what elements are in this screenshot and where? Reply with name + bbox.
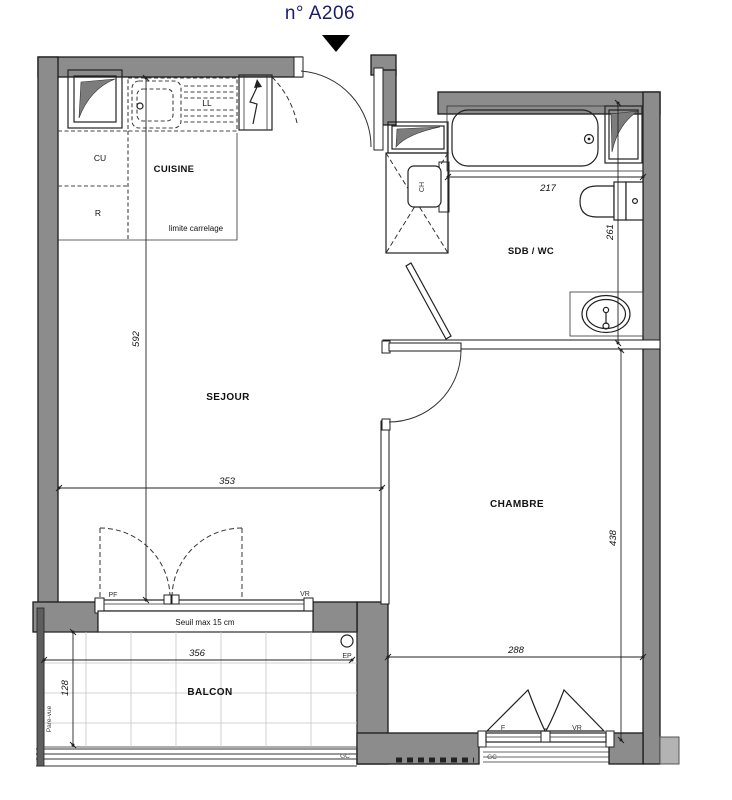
- rain-pipe-label: EP: [342, 653, 352, 660]
- rain-pipe-icon: [341, 635, 353, 647]
- fridge-label: R: [95, 208, 101, 218]
- shutter-label-vr-chambre: VR: [572, 725, 582, 732]
- dimension-lines: [44, 78, 643, 745]
- gc-label-balcon: GC: [340, 753, 350, 760]
- floor-plan-drawing: n° A206: [0, 0, 732, 800]
- dim-sejour-height: 592: [131, 330, 142, 347]
- kitchen-sink-icon: [132, 81, 181, 128]
- privacy-screen: [37, 608, 44, 766]
- dim-balcon-width: 356: [189, 648, 206, 659]
- dim-sejour-width: 353: [219, 476, 236, 487]
- kitchen-tall-closet-icon: [68, 70, 122, 128]
- room-label-cuisine: CUISINE: [154, 164, 195, 175]
- gc-label-chambre: GC: [487, 754, 497, 761]
- entrance-door: [272, 71, 371, 147]
- tile-limit-label: limite carrelage: [169, 224, 224, 233]
- privacy-screen-label: Pare-vue: [46, 705, 53, 732]
- shutter-label-vr-sejour: VR: [300, 591, 310, 598]
- washing-machine-label: LL: [202, 98, 212, 108]
- washbasin-icon: [570, 292, 643, 336]
- room-label-sejour: SEJOUR: [206, 392, 250, 403]
- dim-sdb-height: 261: [605, 224, 616, 241]
- apartment-number: n° A206: [285, 3, 355, 24]
- bedroom-door: [382, 341, 461, 430]
- cupboard-label: CU: [94, 153, 106, 163]
- dim-chambre-height: 438: [608, 529, 619, 546]
- entrance-arrow-icon: [322, 35, 350, 52]
- toilet-icon: [580, 182, 643, 220]
- room-label-sdb-wc: SDB / WC: [508, 246, 554, 257]
- room-label-chambre: CHAMBRE: [490, 499, 544, 510]
- dim-chambre-width: 288: [507, 645, 525, 656]
- neighbor-wall-step: [660, 737, 679, 764]
- entry-closet-icon: [388, 122, 448, 153]
- floor-plan: n° A206: [0, 0, 732, 800]
- window-label-f: F: [501, 725, 505, 732]
- bathroom-door: [406, 263, 451, 339]
- room-label-balcon: BALCON: [187, 687, 232, 698]
- dim-balcon-depth: 128: [60, 679, 71, 696]
- balcony-railing: [36, 749, 357, 766]
- dim-sdb-width: 217: [539, 183, 557, 194]
- kitchen-counter: [128, 78, 237, 131]
- balcony-french-door: [95, 528, 313, 613]
- water-heater-icon: CH: [386, 153, 448, 253]
- threshold-box: Seuil max 15 cm: [98, 611, 313, 632]
- door-label-pf: PF: [109, 592, 118, 599]
- water-heater-label: CH: [419, 182, 426, 192]
- exterior-walls: [33, 55, 679, 764]
- electrical-riser-icon: [239, 75, 272, 130]
- threshold-label: Seuil max 15 cm: [175, 618, 234, 627]
